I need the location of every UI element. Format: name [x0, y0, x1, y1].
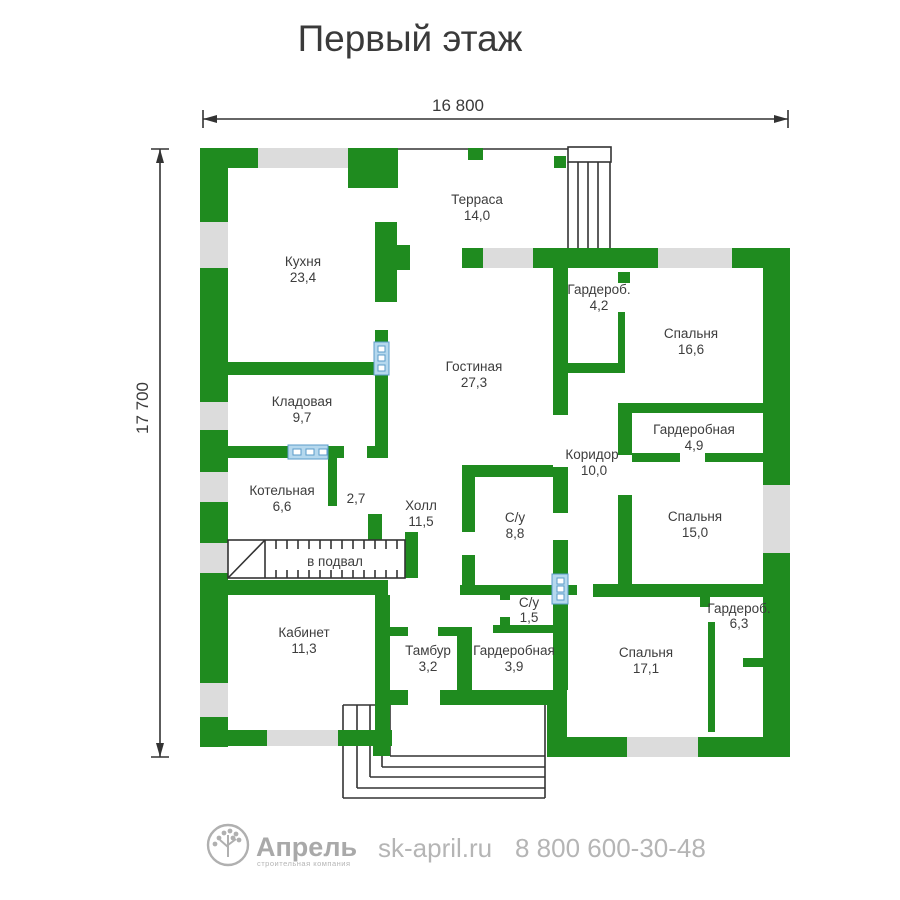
company-logo-tree-icon — [208, 825, 248, 865]
dimension-width: 16 800 — [203, 96, 788, 128]
room-area-hall: 11,5 — [408, 514, 433, 529]
room-area-bathroom-88: 8,8 — [506, 526, 525, 541]
room-area-bedroom-171: 17,1 — [633, 661, 659, 676]
room-area-bedroom-150: 15,0 — [682, 525, 708, 540]
window — [658, 248, 732, 268]
room-area-wardrobe-49: 4,9 — [685, 438, 704, 453]
room-name-boiler: Котельная — [249, 483, 314, 498]
room-name-pantry: Кладовая — [272, 394, 332, 409]
window — [483, 248, 533, 268]
room-name-kitchen: Кухня — [285, 254, 321, 269]
room-name-bedroom-166: Спальня — [664, 326, 718, 341]
dimension-height-label: 17 700 — [133, 382, 152, 434]
room-area-cabinet: 11,3 — [291, 641, 316, 656]
floor-plan-drawing: Первый этаж 16 800 17 700 — [0, 0, 900, 900]
room-name-wardrobe-63: Гардероб. — [707, 601, 770, 616]
window — [267, 730, 338, 746]
website-link[interactable]: sk-april.ru — [378, 833, 492, 863]
company-name: Апрель — [256, 832, 357, 862]
room-area-living: 27,3 — [461, 375, 487, 390]
glass-block — [552, 574, 568, 604]
room-name-corridor: Коридор — [565, 447, 618, 462]
room-area-pantry: 9,7 — [293, 410, 312, 425]
glass-block — [288, 445, 328, 459]
company-tagline: строительная компания — [257, 859, 351, 868]
room-area-kitchen: 23,4 — [290, 270, 317, 285]
room-name-terrace: Терраса — [451, 192, 503, 207]
room-name-bathroom-88: С/у — [505, 510, 526, 525]
exterior-stairs — [568, 147, 611, 248]
footer: Апрель строительная компания sk-april.ru… — [208, 825, 706, 868]
room-area-vestibule: 3,2 — [419, 659, 438, 674]
room-name-hall: Холл — [405, 498, 437, 513]
room-name-bedroom-150: Спальня — [668, 509, 722, 524]
window — [200, 402, 228, 430]
room-area-boiler: 6,6 — [273, 499, 292, 514]
room-name-wardrobe-39: Гардеробная — [473, 643, 555, 658]
floor-plan-page: Первый этаж 16 800 17 700 — [0, 0, 900, 900]
basement-stairs: в подвал — [228, 540, 405, 578]
window — [258, 148, 348, 168]
room-name-vestibule: Тамбур — [405, 643, 451, 658]
room-area-wardrobe-42: 4,2 — [590, 298, 609, 313]
window — [627, 737, 698, 757]
basement-stairs-label: в подвал — [307, 554, 363, 569]
room-area-corridor: 10,0 — [581, 463, 607, 478]
room-area-bedroom-166: 16,6 — [678, 342, 704, 357]
window — [200, 543, 228, 573]
room-area-wardrobe-39: 3,9 — [505, 659, 524, 674]
room-area-niche: 2,7 — [347, 491, 366, 506]
phone-number[interactable]: 8 800 600-30-48 — [515, 833, 706, 863]
room-name-living: Гостиная — [446, 359, 503, 374]
room-name-bedroom-171: Спальня — [619, 645, 673, 660]
room-name-cabinet: Кабинет — [278, 625, 329, 640]
room-area-wardrobe-63: 6,3 — [730, 616, 749, 631]
room-name-wardrobe-49: Гардеробная — [653, 422, 735, 437]
room-name-bathroom-15: С/у — [519, 595, 540, 610]
dimension-width-label: 16 800 — [432, 96, 484, 115]
room-area-terrace: 14,0 — [464, 208, 490, 223]
room-area-bathroom-15: 1,5 — [520, 610, 539, 625]
dimension-height: 17 700 — [133, 149, 169, 757]
window — [200, 222, 228, 268]
window — [763, 485, 790, 553]
page-title: Первый этаж — [298, 18, 523, 59]
glass-block — [374, 342, 389, 375]
room-name-wardrobe-42: Гардероб. — [567, 282, 630, 297]
window — [200, 683, 228, 717]
window — [200, 472, 228, 502]
